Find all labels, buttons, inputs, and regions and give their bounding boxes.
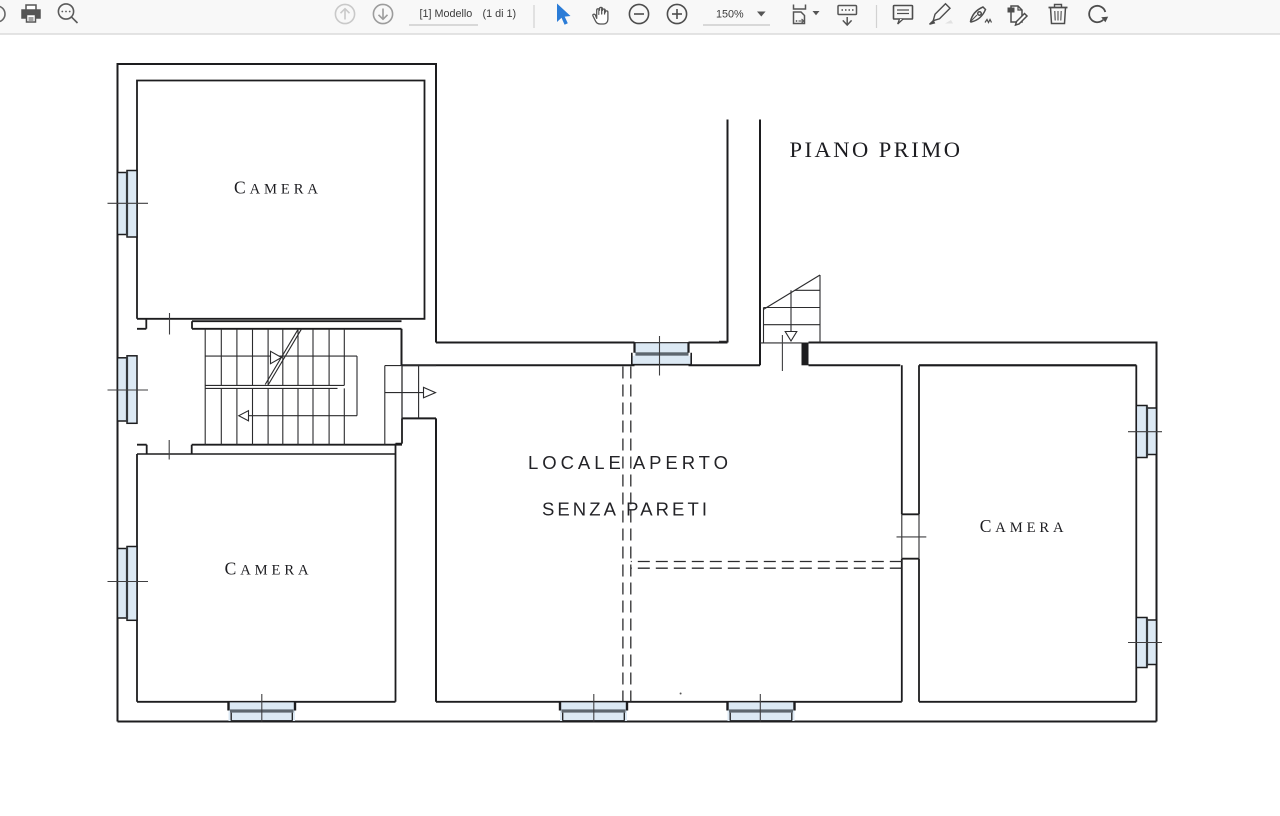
svg-text:150%: 150%: [716, 8, 744, 20]
svg-text:PIANO PRIMO: PIANO PRIMO: [790, 137, 963, 162]
svg-text:LOCALE APERTO: LOCALE APERTO: [528, 452, 732, 473]
svg-text:(1 di 1): (1 di 1): [483, 8, 517, 20]
svg-text:[1] Modello: [1] Modello: [420, 8, 473, 20]
svg-text:SENZA PARETI: SENZA PARETI: [542, 499, 710, 520]
